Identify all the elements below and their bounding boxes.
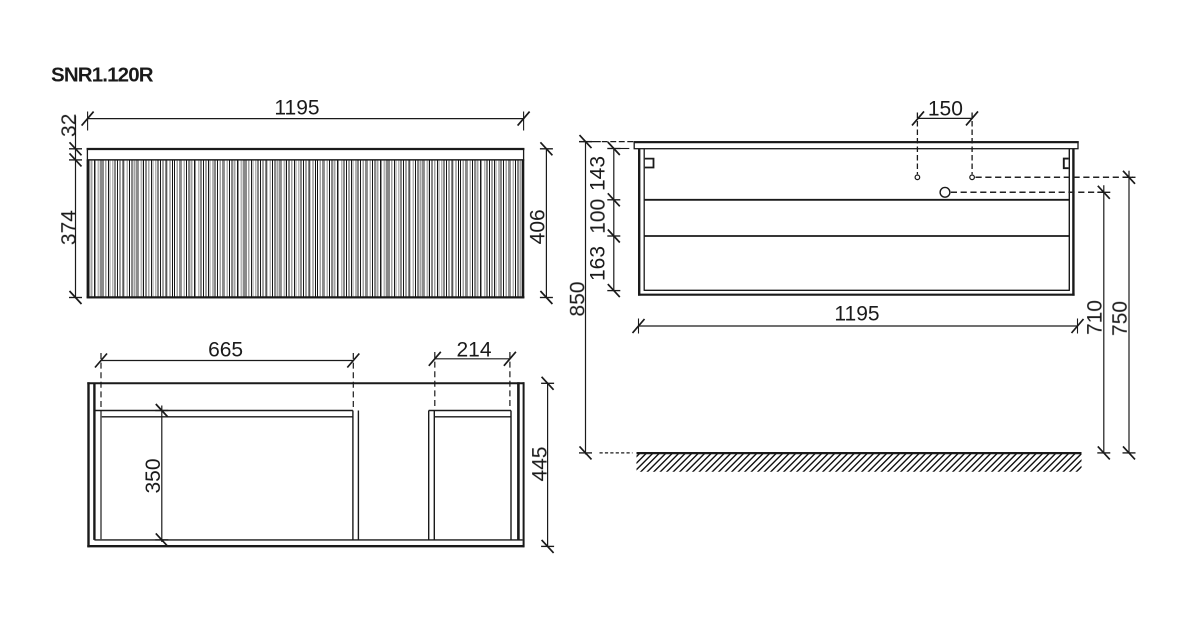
- svg-text:32: 32: [58, 114, 81, 137]
- svg-text:374: 374: [58, 210, 81, 245]
- svg-text:SNR1.120R: SNR1.120R: [51, 63, 154, 86]
- svg-text:665: 665: [208, 338, 243, 361]
- svg-text:214: 214: [456, 338, 491, 361]
- svg-text:1195: 1195: [274, 96, 319, 119]
- svg-text:150: 150: [928, 97, 963, 120]
- svg-text:406: 406: [526, 209, 549, 244]
- svg-text:750: 750: [1109, 301, 1132, 336]
- svg-text:850: 850: [566, 281, 589, 316]
- svg-text:1195: 1195: [834, 302, 879, 325]
- svg-text:350: 350: [142, 458, 165, 493]
- svg-text:163: 163: [587, 246, 610, 281]
- svg-text:100: 100: [587, 199, 610, 234]
- svg-text:445: 445: [529, 446, 552, 481]
- svg-text:143: 143: [587, 156, 610, 191]
- svg-text:710: 710: [1084, 300, 1107, 335]
